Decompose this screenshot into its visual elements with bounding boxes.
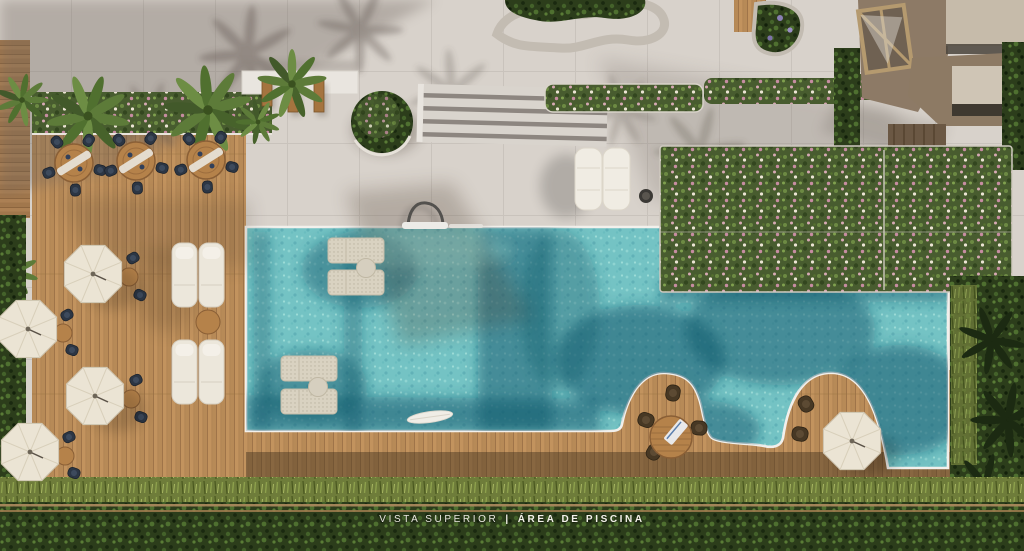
deck-lounger xyxy=(172,243,197,307)
paving-lounger xyxy=(603,148,630,210)
hedge-planter xyxy=(704,78,844,104)
pool-lounger xyxy=(328,270,384,295)
side-table xyxy=(196,310,220,334)
flowering-hedge-wall xyxy=(660,146,1012,292)
fence-rail xyxy=(0,504,1024,507)
slat-table xyxy=(650,416,692,458)
pool-lounger xyxy=(281,389,337,414)
deck-lounger xyxy=(199,243,224,307)
parasol xyxy=(64,245,121,302)
parasol xyxy=(1,423,58,480)
parasol xyxy=(0,300,57,357)
deck-lounger xyxy=(172,340,197,404)
caption-view-label: VISTA SUPERIOR xyxy=(379,514,498,525)
pool-step xyxy=(449,224,483,228)
pool-side-table xyxy=(357,259,376,278)
paving-lounger xyxy=(575,148,602,210)
deck-lounger xyxy=(199,340,224,404)
roof-slab xyxy=(946,0,1024,46)
pool-lounger xyxy=(328,238,384,263)
skylight xyxy=(858,5,912,73)
caption-separator: | xyxy=(505,514,510,525)
parasol xyxy=(823,412,880,469)
fence-rail xyxy=(0,510,1024,512)
perimeter-hedge xyxy=(0,502,1024,551)
grass-strip xyxy=(0,477,1024,504)
scene-canvas xyxy=(0,0,1024,551)
parasol xyxy=(66,367,123,424)
image-caption: VISTA SUPERIOR|ÁREA DE PISCINA xyxy=(379,514,644,525)
hedge-planter xyxy=(545,84,703,112)
pool-step xyxy=(402,222,448,229)
wicker-chair xyxy=(690,420,707,435)
pool-aerial-rendering: VISTA SUPERIOR|ÁREA DE PISCINA xyxy=(0,0,1024,551)
pool-lounger xyxy=(281,356,337,381)
caption-area-label: ÁREA DE PISCINA xyxy=(518,514,645,525)
pool-side-table xyxy=(309,378,328,397)
